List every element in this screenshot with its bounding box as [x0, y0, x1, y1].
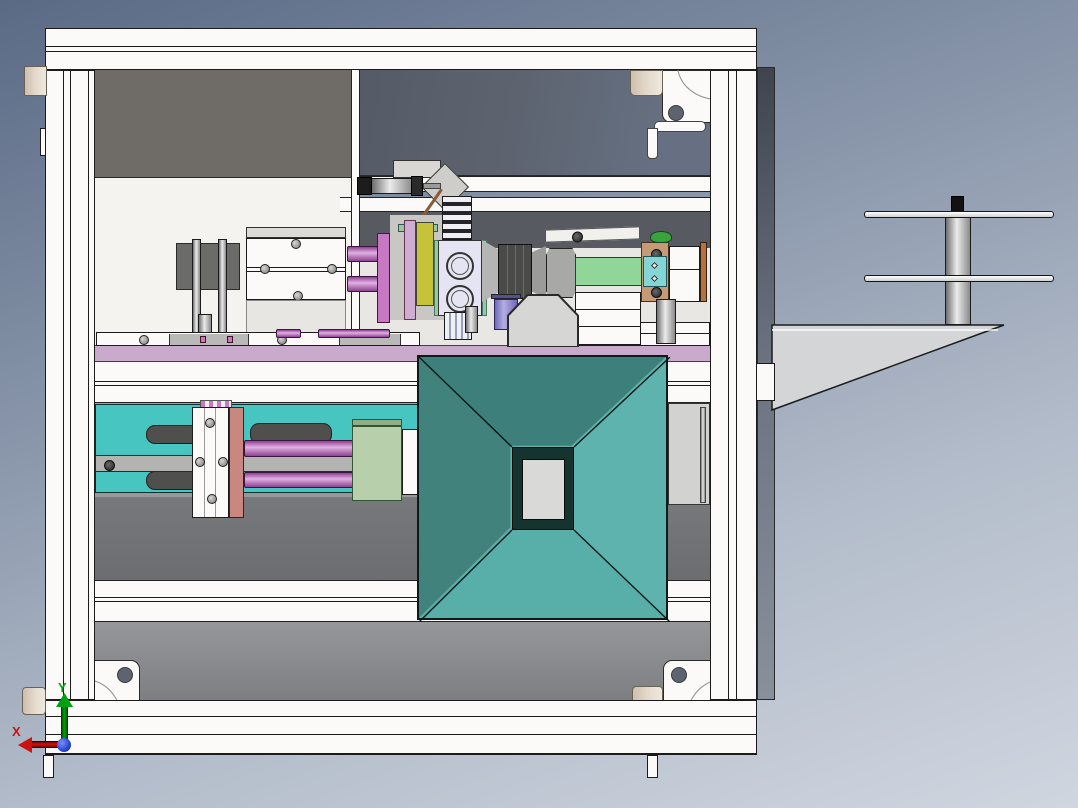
sage-block: [352, 426, 402, 501]
axis-y-label: Y: [58, 681, 67, 694]
clamp-block-top-left: [24, 66, 47, 96]
piston-rod-lower: [347, 276, 378, 292]
frame-right-post: [710, 70, 757, 700]
train-dark-block: [498, 244, 532, 299]
striped-valve-block: [442, 196, 472, 240]
green-knob: [650, 231, 672, 243]
bottom-bay-panel: [95, 622, 710, 705]
cyan-pad: [643, 256, 667, 287]
corner-gusset-top-right: [662, 70, 713, 123]
piston-rod-upper: [347, 246, 378, 262]
air-elbow-horizontal: [654, 121, 706, 132]
machine-foot-right: [647, 755, 658, 778]
support-post-small: [465, 306, 478, 333]
stored-rod-b: [318, 329, 390, 338]
spool-shaft-lower: [945, 281, 971, 325]
train-coupler-block: [546, 248, 576, 298]
salmon-plate: [229, 407, 244, 518]
panel-divider-strip: [351, 70, 360, 345]
mini-cylinder-rod: [423, 183, 441, 189]
frame-bottom-beam: [45, 700, 757, 755]
guide-post-right: [218, 239, 227, 337]
frame-left-post: [45, 70, 95, 700]
side-bracket-triangle: [770, 321, 1006, 413]
support-stack-mid: [575, 292, 641, 345]
carriage-block: [192, 407, 229, 518]
axis-x-label: X: [12, 725, 21, 738]
train-cone-left: [482, 240, 498, 302]
right-support-block: [669, 246, 700, 302]
sage-block-cap: [352, 419, 402, 426]
axis-x-arrowhead: [18, 737, 32, 753]
stored-rod-a: [276, 329, 301, 338]
spool-flange-upper: [864, 211, 1054, 218]
train-cone-right: [532, 246, 546, 298]
green-bar: [575, 257, 642, 286]
frame-top-beam: [45, 28, 757, 70]
back-panel-dark: [95, 70, 355, 178]
origin-triad: Y X: [0, 655, 130, 775]
spool-shaft-upper: [945, 215, 971, 279]
mini-cylinder-collar: [411, 176, 423, 196]
foot-cylinder-top-right: [630, 70, 663, 96]
yellow-plate: [416, 222, 434, 306]
mini-cylinder-body: [371, 178, 413, 194]
brown-strip: [700, 242, 707, 302]
pusher-plate-magenta: [377, 233, 390, 323]
spool-flange-lower: [864, 275, 1054, 282]
support-post-right: [656, 299, 676, 344]
right-bay-rail: [700, 407, 706, 503]
screw-block-cap: [246, 227, 346, 238]
screw-block: [246, 238, 346, 300]
axis-origin-sphere: [57, 738, 71, 752]
tab-left: [40, 128, 46, 156]
hopper-funnel: [417, 355, 668, 620]
guide-post-back-block: [176, 243, 240, 290]
bearing-block: [438, 240, 482, 316]
axis-y-arrowhead: [56, 693, 73, 707]
bracket-mount-block: [755, 363, 775, 401]
cad-viewport[interactable]: Y X: [0, 0, 1078, 808]
mini-cylinder-cap: [357, 177, 372, 195]
air-elbow-vertical: [647, 128, 658, 159]
mauve-strip: [404, 220, 416, 320]
funnel-outlet: [522, 459, 565, 520]
cross-strip-b: [340, 197, 710, 212]
